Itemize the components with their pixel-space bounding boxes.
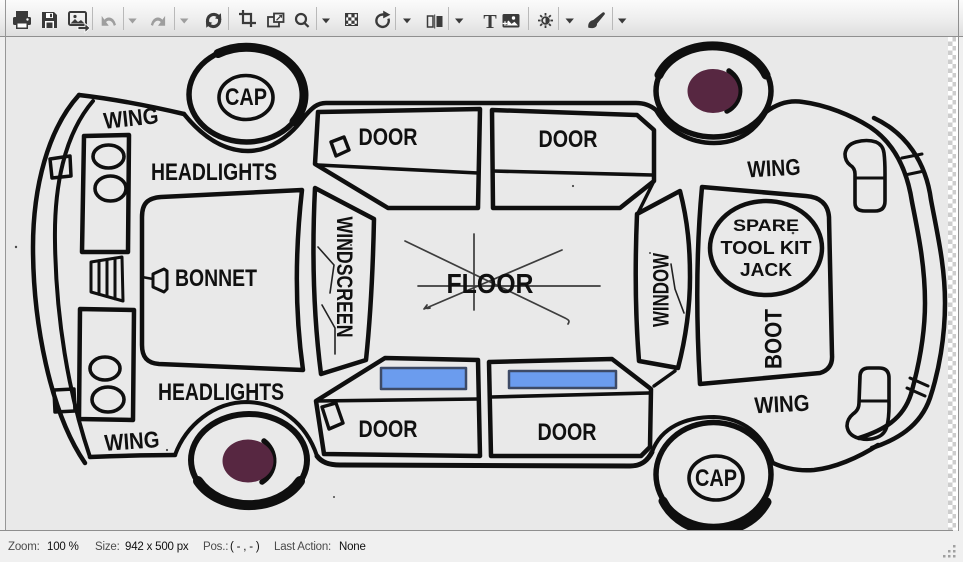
svg-text:DOOR: DOOR [538,419,597,446]
svg-text:WING: WING [754,390,810,419]
svg-text:HEADLIGHTS: HEADLIGHTS [151,159,277,186]
svg-text:WING: WING [747,154,801,183]
svg-text:WINDSCREEN: WINDSCREEN [332,217,357,338]
svg-text:DOOR: DOOR [539,126,598,153]
svg-text:T: T [483,11,497,33]
svg-text:SPARE: SPARE [733,216,799,235]
svg-text:DOOR: DOOR [359,416,418,443]
svg-text:TOOL KIT: TOOL KIT [721,238,812,258]
svg-text:CAP: CAP [225,84,267,111]
svg-text:JACK: JACK [740,260,792,280]
svg-text:WINDOW: WINDOW [649,253,674,327]
svg-text:HEADLIGHTS: HEADLIGHTS [158,379,284,406]
svg-text:BOOT: BOOT [761,309,788,369]
svg-text:CAP: CAP [695,465,737,492]
svg-text:DOOR: DOOR [359,124,418,151]
svg-text:WING: WING [104,426,161,456]
svg-text:FLOOR: FLOOR [447,268,534,299]
svg-text:WING: WING [102,102,159,134]
svg-text:BONNET: BONNET [175,265,257,292]
